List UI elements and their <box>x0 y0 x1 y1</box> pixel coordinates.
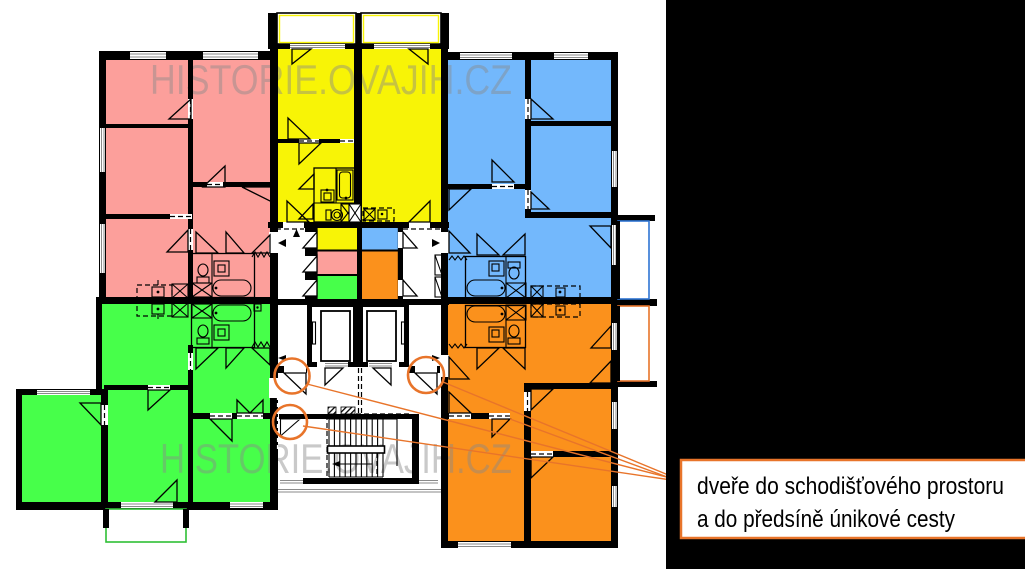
svg-text:a do předsíně únikové cesty: a do předsíně únikové cesty <box>697 506 955 533</box>
svg-text:HISTORIE.OVAJIH.CZ: HISTORIE.OVAJIH.CZ <box>150 56 512 103</box>
svg-text:dveře do schodišťového prostor: dveře do schodišťového prostoru <box>697 473 1004 500</box>
svg-text:HISTORIE.OVAJIH.CZ: HISTORIE.OVAJIH.CZ <box>160 435 512 482</box>
